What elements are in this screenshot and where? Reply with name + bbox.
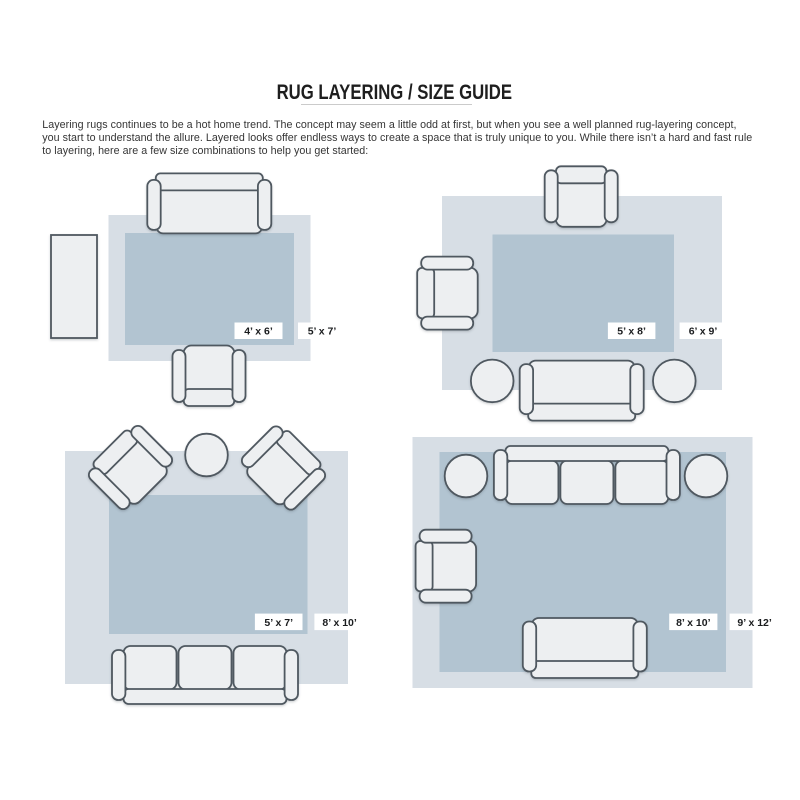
- svg-text:5’ x 7’: 5’ x 7’: [308, 326, 337, 338]
- svg-text:4’ x 6’: 4’ x 6’: [244, 326, 273, 338]
- svg-text:5’ x 8’: 5’ x 8’: [617, 326, 646, 338]
- svg-text:5’ x 7’: 5’ x 7’: [264, 617, 293, 629]
- svg-text:8’ x 10’: 8’ x 10’: [322, 617, 357, 629]
- svg-text:6’ x 9’: 6’ x 9’: [689, 326, 718, 338]
- svg-text:9’ x 12’: 9’ x 12’: [737, 617, 772, 629]
- svg-text:8’ x 10’: 8’ x 10’: [676, 617, 711, 629]
